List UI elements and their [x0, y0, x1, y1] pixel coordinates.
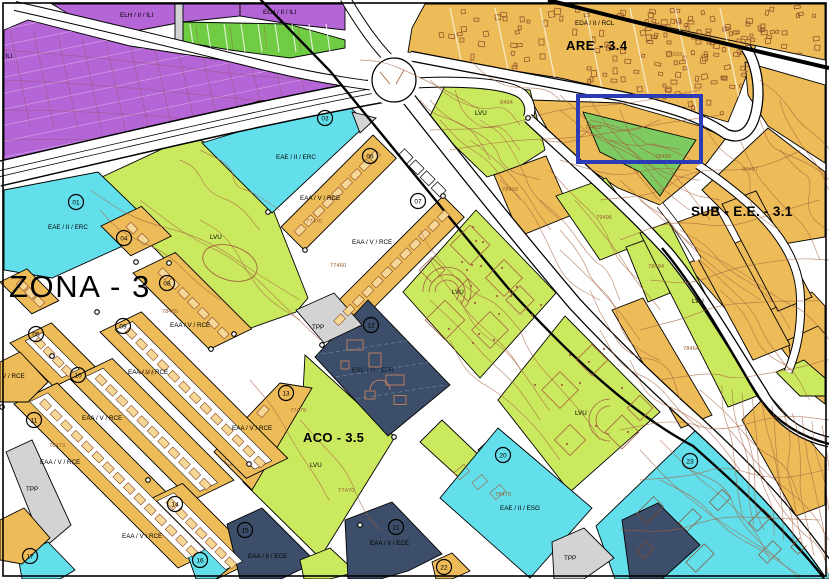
svg-text:78503: 78503: [666, 52, 682, 58]
svg-text:V / RCE: V / RCE: [2, 373, 25, 380]
svg-text:EAA / V / RCE: EAA / V / RCE: [170, 322, 210, 329]
svg-text:79496: 79496: [596, 215, 612, 221]
svg-text:21: 21: [392, 524, 400, 531]
svg-text:06: 06: [366, 153, 374, 160]
svg-text:78494: 78494: [648, 264, 665, 270]
svg-text:11: 11: [31, 417, 38, 424]
svg-text:04: 04: [120, 235, 128, 242]
svg-text:22: 22: [440, 564, 448, 571]
svg-text:TPP: TPP: [26, 486, 38, 493]
svg-text:LVU: LVU: [692, 298, 704, 305]
svg-text:23: 23: [686, 458, 694, 465]
svg-text:08: 08: [163, 280, 171, 287]
svg-text:LVU: LVU: [475, 110, 487, 117]
svg-text:77479: 77479: [290, 408, 306, 414]
svg-text:8494: 8494: [500, 100, 514, 106]
svg-text:ZONA - 3: ZONA - 3: [9, 269, 151, 304]
svg-text:EAA / V / RCE: EAA / V / RCE: [352, 239, 392, 246]
svg-text:EDA / II / RCL: EDA / II / RCL: [575, 20, 615, 27]
svg-text:15: 15: [241, 527, 249, 534]
svg-text:20: 20: [499, 452, 507, 459]
svg-text:13: 13: [282, 390, 290, 397]
svg-text:80497: 80497: [742, 167, 758, 173]
svg-text:ESC / III / EPR: ESC / III / EPR: [352, 367, 394, 374]
svg-text:TPP: TPP: [312, 324, 324, 331]
svg-text:LVU: LVU: [210, 234, 222, 241]
svg-text:03: 03: [321, 115, 329, 122]
svg-text:16: 16: [196, 557, 204, 564]
svg-text:78403: 78403: [585, 125, 601, 131]
svg-text:12: 12: [367, 322, 375, 329]
svg-text:ARE - 3.4: ARE - 3.4: [566, 38, 628, 53]
svg-text:LVU: LVU: [575, 410, 587, 417]
svg-text:78464: 78464: [683, 346, 700, 352]
svg-text:ELH / II / ILI: ELH / II / ILI: [120, 12, 153, 19]
svg-text:77460: 77460: [330, 263, 346, 269]
svg-text:EAA / V / RCE: EAA / V / RCE: [40, 459, 80, 466]
svg-text:EAA / V / RCE: EAA / V / RCE: [232, 425, 272, 432]
svg-text:ELH / II / ILI: ELH / II / ILI: [263, 9, 296, 16]
svg-text:TPP: TPP: [564, 555, 576, 562]
svg-text:ACO - 3.5: ACO - 3.5: [303, 430, 364, 445]
svg-text:78470: 78470: [138, 371, 154, 377]
svg-text:78470: 78470: [495, 492, 511, 498]
svg-text:78490: 78490: [502, 187, 518, 193]
svg-text:09: 09: [119, 323, 127, 330]
svg-text:78485: 78485: [162, 309, 178, 315]
svg-text:EAA / V / RCE: EAA / V / RCE: [300, 195, 340, 202]
svg-text:LVU: LVU: [310, 462, 322, 469]
svg-text:01: 01: [72, 199, 80, 206]
svg-text:LVU: LVU: [452, 289, 464, 296]
svg-text:17: 17: [26, 553, 34, 560]
svg-text:EAA / II / ECE: EAA / II / ECE: [248, 553, 287, 560]
svg-text:EAE / II / ERC: EAE / II / ERC: [276, 154, 316, 161]
svg-text:EAA / II / ECE: EAA / II / ECE: [370, 540, 409, 547]
svg-text:78473: 78473: [49, 443, 65, 449]
svg-text:T7470: T7470: [338, 488, 354, 494]
svg-text:07: 07: [414, 198, 422, 205]
svg-text:78490: 78490: [655, 154, 671, 160]
svg-text:EAE / II / ESG: EAE / II / ESG: [500, 505, 540, 512]
svg-text:05: 05: [32, 331, 40, 338]
svg-text:EAA / V / RCE: EAA / V / RCE: [82, 415, 122, 422]
svg-text:SUB - E.E. - 3.1: SUB - E.E. - 3.1: [691, 204, 793, 219]
svg-text:14: 14: [171, 501, 179, 508]
svg-text:EAA / V / RCE: EAA / V / RCE: [122, 533, 162, 540]
svg-text:77470: 77470: [306, 219, 322, 225]
svg-text:EAE / II / ERC: EAE / II / ERC: [48, 224, 88, 231]
svg-text:10: 10: [74, 372, 82, 379]
